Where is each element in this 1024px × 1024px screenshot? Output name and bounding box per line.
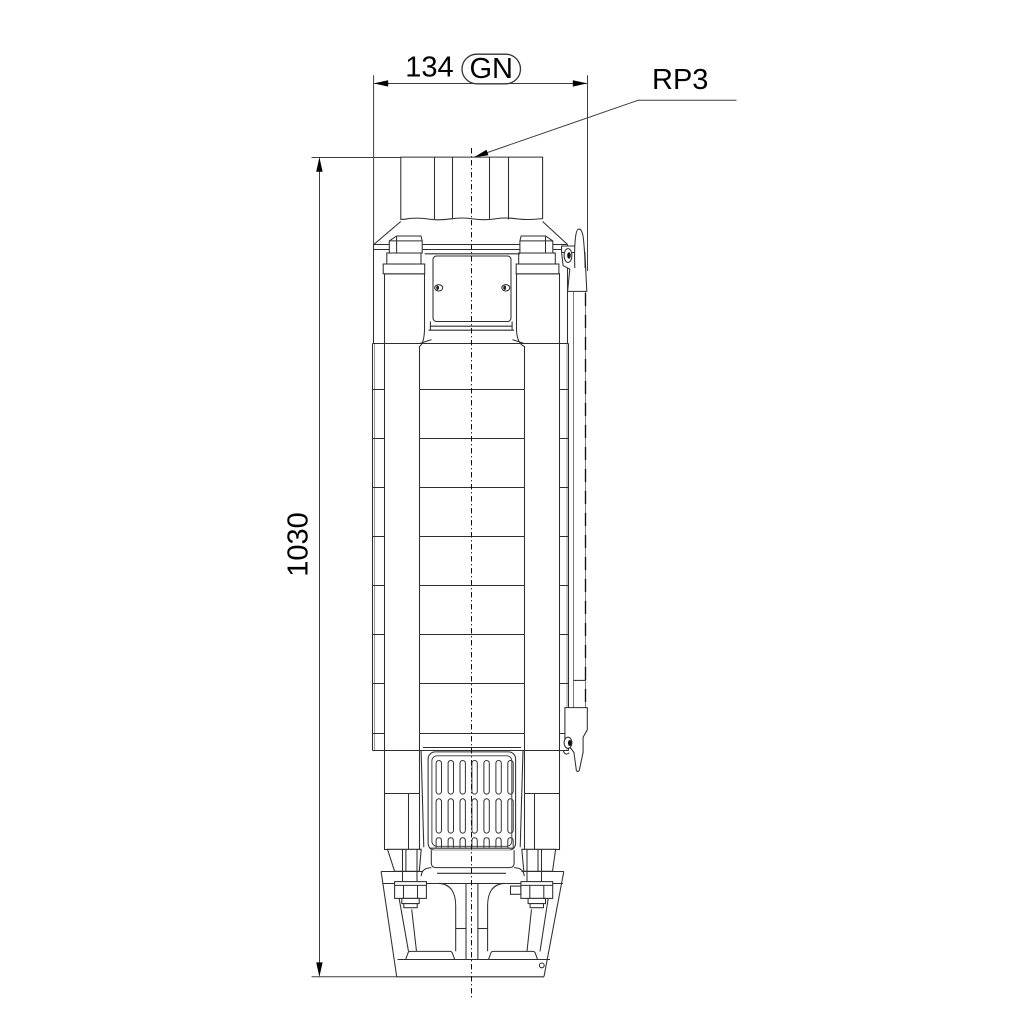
svg-text:GN: GN — [469, 53, 513, 85]
svg-text:RP3: RP3 — [652, 64, 708, 96]
svg-text:1030: 1030 — [283, 512, 315, 577]
svg-text:134: 134 — [405, 51, 453, 83]
